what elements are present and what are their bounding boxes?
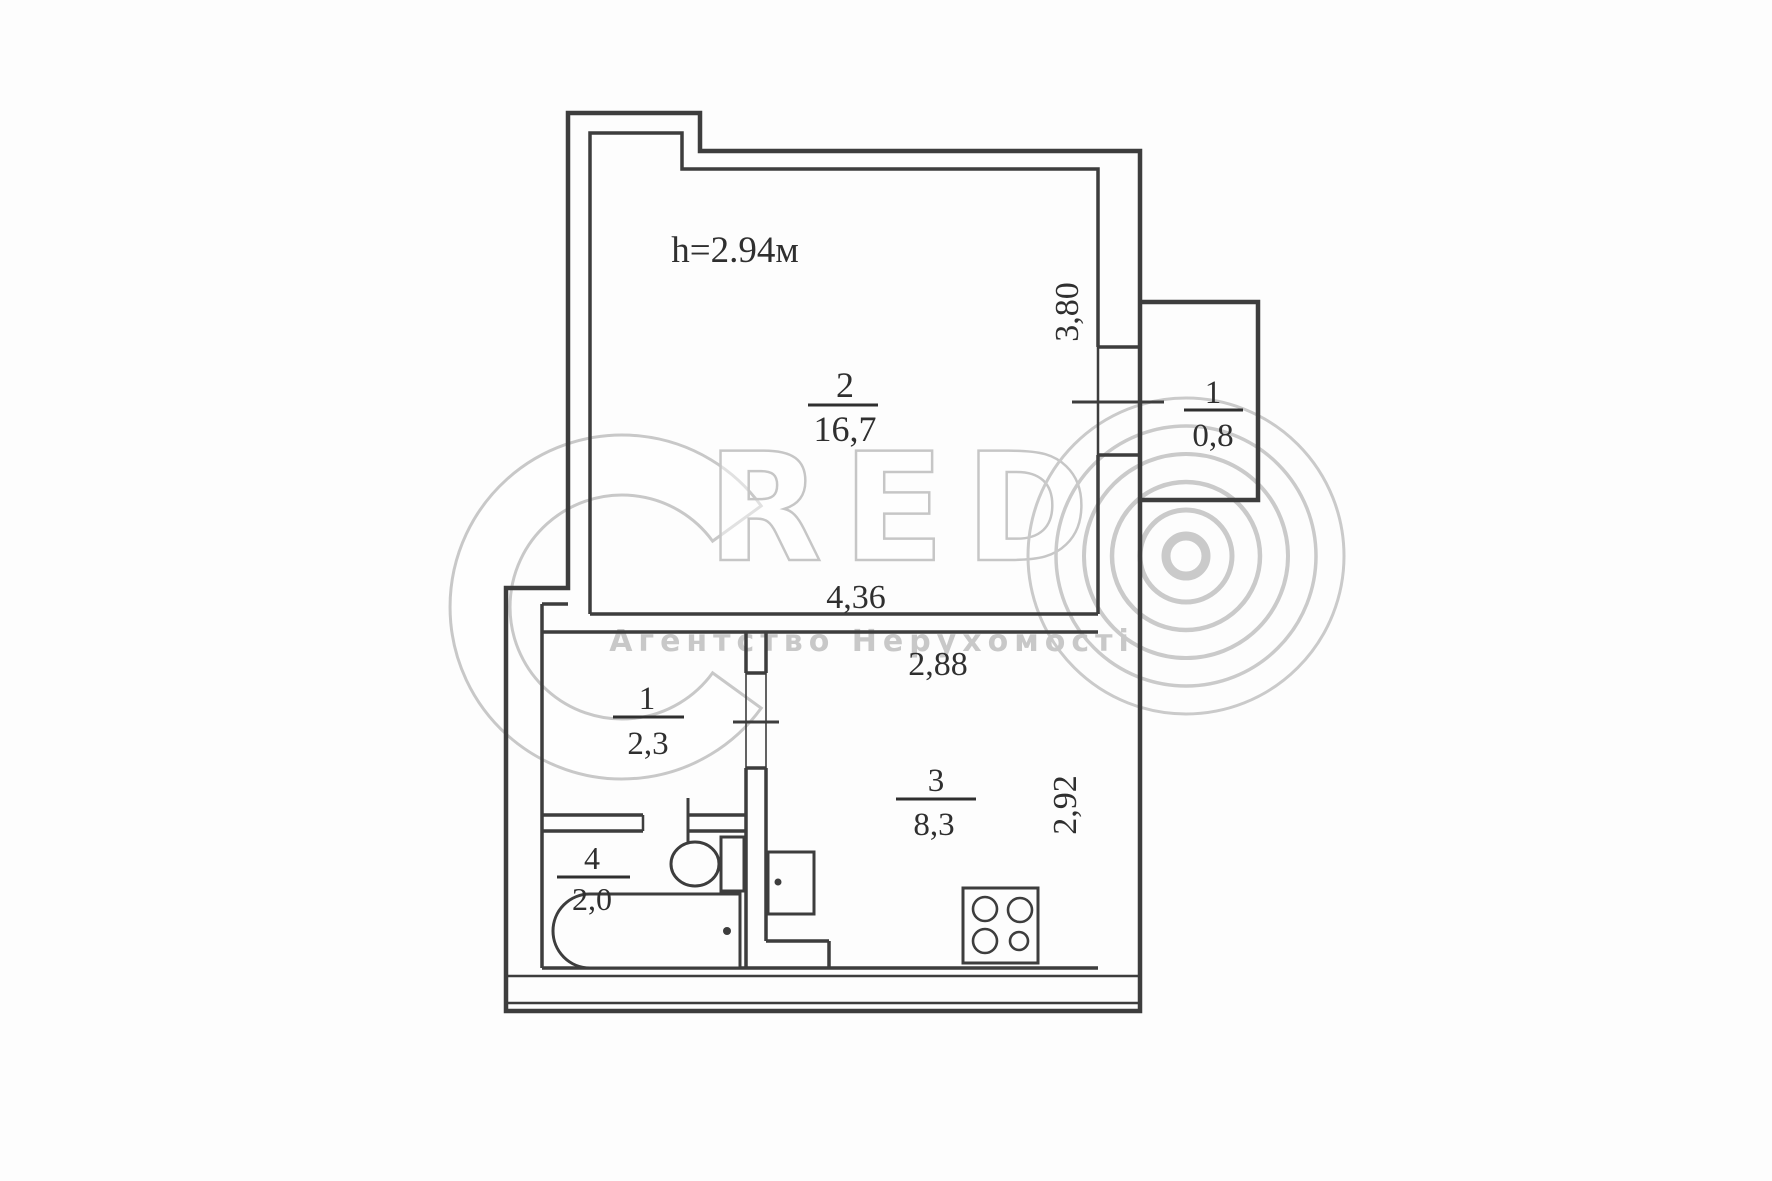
room-area: 16,7 <box>814 409 877 449</box>
watermark-group: RED Агентство Нерухомості <box>450 398 1344 779</box>
room-area: 0,8 <box>1192 418 1233 454</box>
room-number: 1 <box>639 681 656 717</box>
sink-icon <box>768 852 814 914</box>
dimension-2-88: 2,88 <box>908 646 968 683</box>
dimension-3-80: 3,80 <box>1049 282 1086 342</box>
bathroom-door-jambs <box>643 815 688 831</box>
room-area: 2,3 <box>627 726 668 762</box>
stove-icon <box>963 888 1038 963</box>
room-label-balcony: 1 0,8 <box>1184 375 1243 454</box>
room-number: 2 <box>836 365 854 405</box>
ceiling-height-label: h=2.94м <box>671 230 799 271</box>
dimension-2-92: 2,92 <box>1047 775 1084 835</box>
room-number: 3 <box>928 763 945 799</box>
room-area: 8,3 <box>913 807 954 843</box>
room-number: 4 <box>584 840 600 876</box>
floor-plan-scan: RED Агентство Нерухомості <box>0 0 1772 1181</box>
room-label-living: 2 16,7 <box>808 365 878 449</box>
room-label-kitchen: 3 8,3 <box>896 763 976 843</box>
watermark-subtitle: Агентство Нерухомості <box>609 624 1135 659</box>
toilet-icon <box>671 837 744 891</box>
room-number: 1 <box>1205 375 1222 411</box>
divider-wall-lines <box>746 632 829 968</box>
floor-plan-svg: RED Агентство Нерухомості <box>0 0 1772 1181</box>
watermark-red-text: RED <box>707 422 1109 596</box>
bottom-wall-extra-lines <box>506 976 1140 1003</box>
fixtures-group <box>553 837 1038 968</box>
room-area: 2,0 <box>572 881 612 917</box>
dimension-4-36: 4,36 <box>826 579 886 616</box>
